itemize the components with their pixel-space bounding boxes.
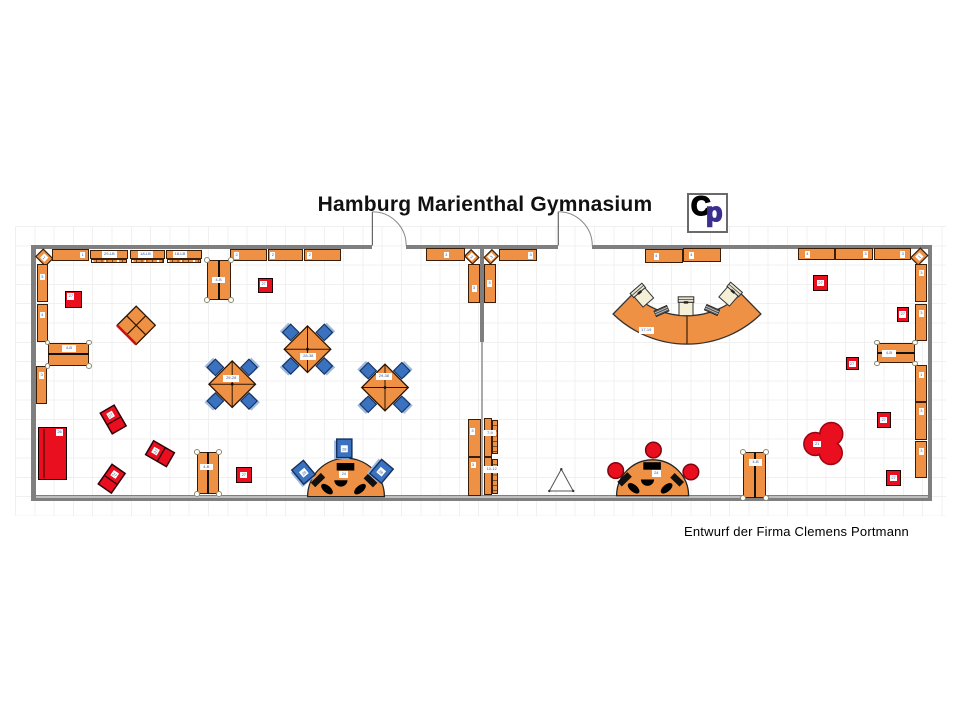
svg-text:28: 28 xyxy=(342,447,347,452)
